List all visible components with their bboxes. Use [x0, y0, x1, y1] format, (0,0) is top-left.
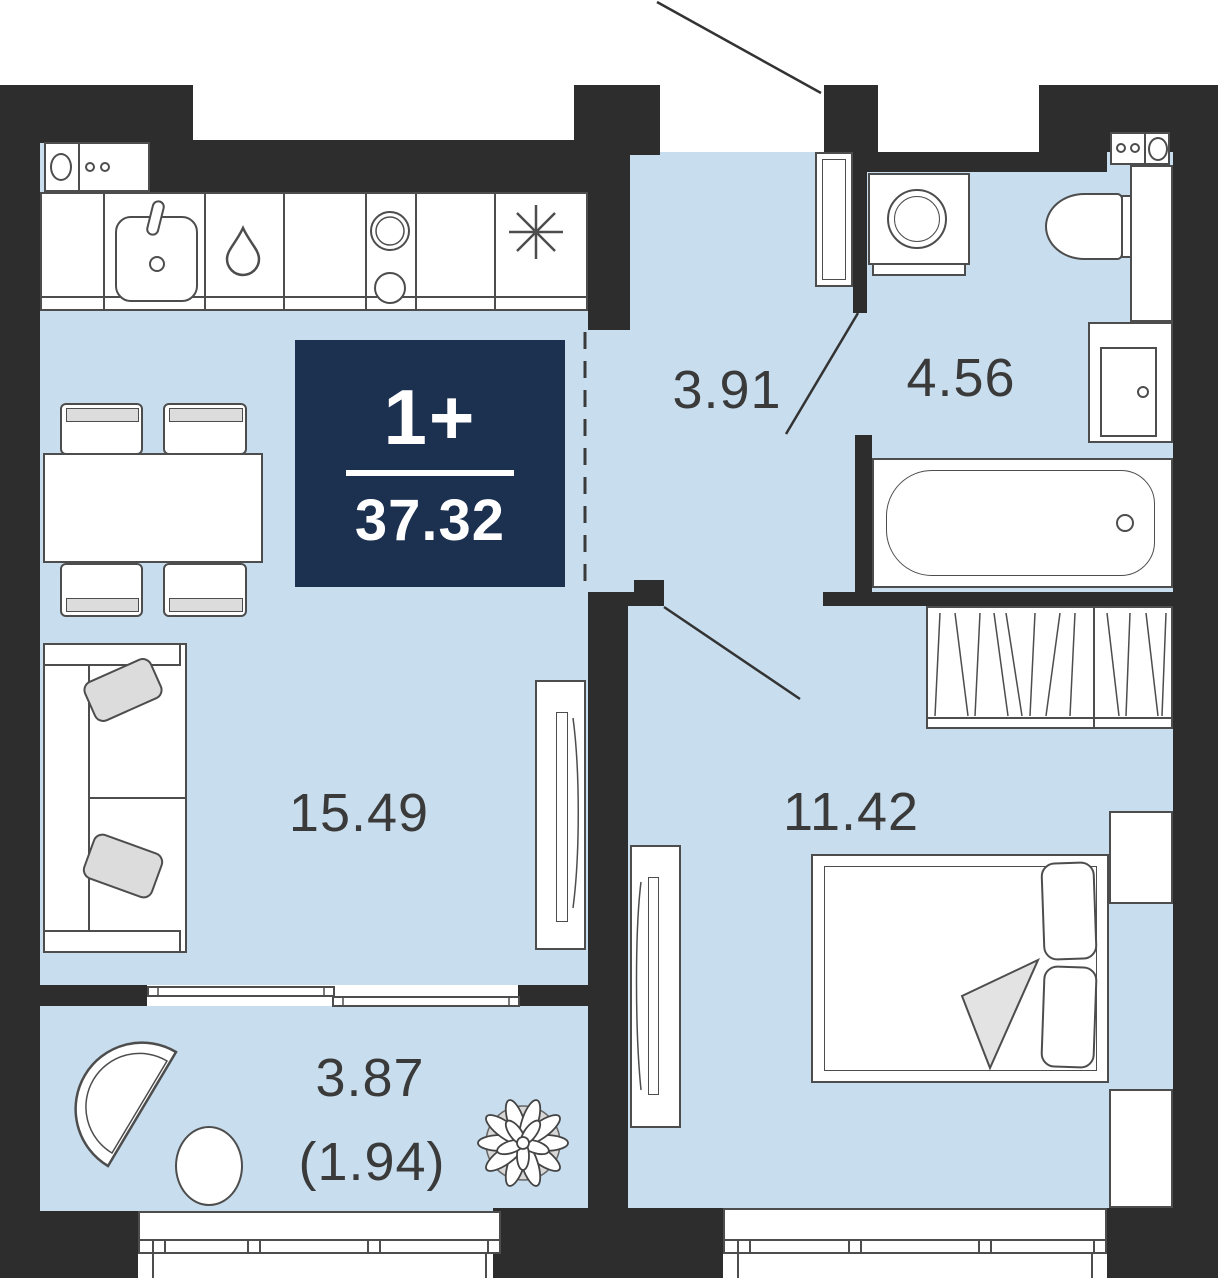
wall-bottom-left [0, 1211, 138, 1278]
wall-balcony-partition-right [518, 985, 588, 1006]
balcony-reduced-area-label: (1.94) [298, 1131, 445, 1193]
wall-bath-door-jamb [853, 172, 867, 313]
wall-kitchen-column [588, 155, 630, 330]
washing-machine-lip [872, 263, 966, 276]
vent-box-divider [1144, 134, 1146, 163]
sofa-armrest-line [43, 664, 180, 666]
wall-bottom-center [493, 1208, 723, 1278]
wardrobe-bottom-line [926, 717, 1173, 719]
partition-window-pane-right [332, 996, 520, 1007]
washer-drum-inner [894, 196, 940, 242]
entry-door-leaf-inner [822, 159, 846, 280]
wall-left [0, 85, 40, 1278]
wall-bottom-right [1107, 1208, 1218, 1278]
wall-bedroom-top-left [628, 592, 664, 606]
sofa-armrest-edge [179, 930, 181, 953]
wardrobe-divider [1093, 606, 1095, 729]
bathroom-cabinet-strip [1130, 165, 1173, 322]
balcony-area-label: 3.87 [315, 1047, 424, 1109]
corridor-area-label: 3.91 [672, 359, 781, 421]
apartment-badge: 1+ 37.32 [295, 340, 565, 587]
vent-box-dot [100, 162, 110, 172]
chair-back-stripe [169, 598, 243, 612]
balcony-window-mullion [487, 1239, 501, 1254]
counter-divider [494, 192, 496, 311]
sink-drain-hole [149, 256, 165, 272]
dining-table-icon [43, 453, 263, 563]
wall-balcony-partition-left [40, 985, 147, 1006]
balcony-window-sill [138, 1211, 501, 1241]
bathtub-drain-dot [1116, 514, 1134, 532]
wall-right [1173, 85, 1218, 1278]
vent-box-ellipse [1148, 137, 1168, 161]
bathroom-area-label: 4.56 [906, 347, 1015, 409]
counter-divider [415, 192, 417, 311]
floor-plan: 15.49 3.91 4.56 11.42 3.87 (1.94) 1+ 37.… [0, 0, 1218, 1278]
bedroom-window-sill [723, 1208, 1107, 1241]
bedroom-window-mullion [1093, 1239, 1107, 1254]
chair-back-stripe [66, 408, 139, 422]
entrance-leader-line [657, 2, 821, 93]
vent-box-dot [85, 162, 95, 172]
chair-back-stripe [169, 408, 243, 422]
badge-divider [346, 470, 514, 476]
partition-window-pane-left [147, 986, 335, 997]
wall-tub-left [855, 435, 872, 592]
wall-utility-niche [150, 143, 193, 192]
counter-divider [204, 192, 206, 311]
badge-total-area: 37.32 [355, 492, 505, 550]
bedroom-window-apron [737, 1252, 1093, 1278]
bedroom-area-label: 11.42 [783, 781, 919, 843]
tv-screen [556, 712, 568, 922]
vanity-faucet-dot [1137, 386, 1149, 398]
wall-kitchen-top [193, 140, 588, 192]
wall-bedroom-top [823, 592, 1173, 606]
toilet-icon [1045, 193, 1123, 260]
nightstand-icon [1109, 811, 1173, 904]
vent-box-ellipse [50, 153, 72, 181]
round-table-icon [175, 1126, 243, 1206]
sofa-armrest-edge [179, 643, 181, 666]
balcony-window-apron [152, 1252, 487, 1278]
chair-back-stripe [66, 598, 139, 612]
counter-divider [365, 192, 367, 311]
wardrobe-icon [926, 606, 1173, 729]
bed-pillow-icon [1040, 861, 1097, 961]
bed-pillow-icon [1040, 965, 1098, 1069]
tv-screen [648, 877, 659, 1095]
badge-rooms-count: 1+ [384, 378, 477, 456]
vent-box-divider [78, 144, 80, 190]
counter-divider [283, 192, 285, 311]
bathtub-inner [886, 470, 1155, 576]
vent-box-dot [1116, 143, 1126, 153]
wall-kitchen-column-top [574, 85, 660, 155]
vent-box-dot [1130, 143, 1140, 153]
wall-central [588, 592, 628, 1211]
sofa-armrest-line [43, 930, 180, 932]
nightstand-icon [1109, 1089, 1173, 1208]
sofa-cushion-split [88, 797, 187, 799]
wall-bath-top-band [855, 152, 1107, 172]
living-room-area-label: 15.49 [289, 782, 429, 844]
counter-divider [103, 192, 105, 311]
wall-bedroom-stub [634, 580, 664, 592]
